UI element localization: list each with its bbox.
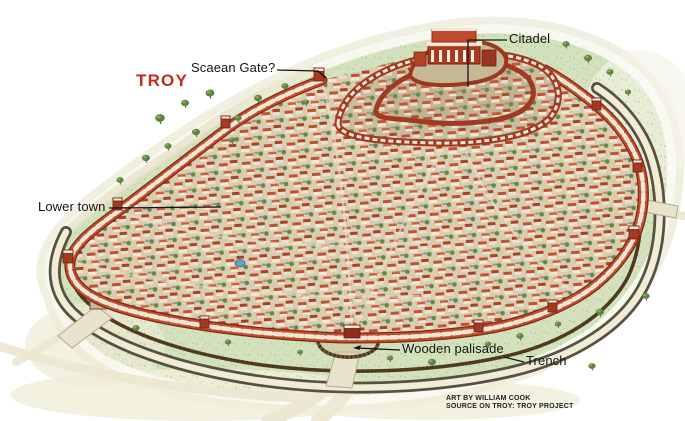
credit-source: SOURCE ON TROY: TROY PROJECT	[446, 403, 573, 411]
label-trench: Trench	[526, 354, 567, 368]
city-pool	[235, 260, 245, 267]
credit-art: ART BY WILLIAM COOK	[446, 395, 573, 403]
label-citadel: Citadel	[509, 32, 550, 46]
troy-reconstruction-illustration: TROY Citadel Scaean Gate? Lower town Woo…	[0, 0, 685, 421]
credits: ART BY WILLIAM COOK SOURCE ON TROY: TROY…	[446, 395, 573, 411]
label-lower-town: Lower town	[38, 200, 105, 214]
map-title: TROY	[136, 74, 188, 88]
label-wooden-palisade: Wooden palisade	[402, 342, 504, 356]
label-scaean-gate: Scaean Gate?	[191, 61, 275, 75]
